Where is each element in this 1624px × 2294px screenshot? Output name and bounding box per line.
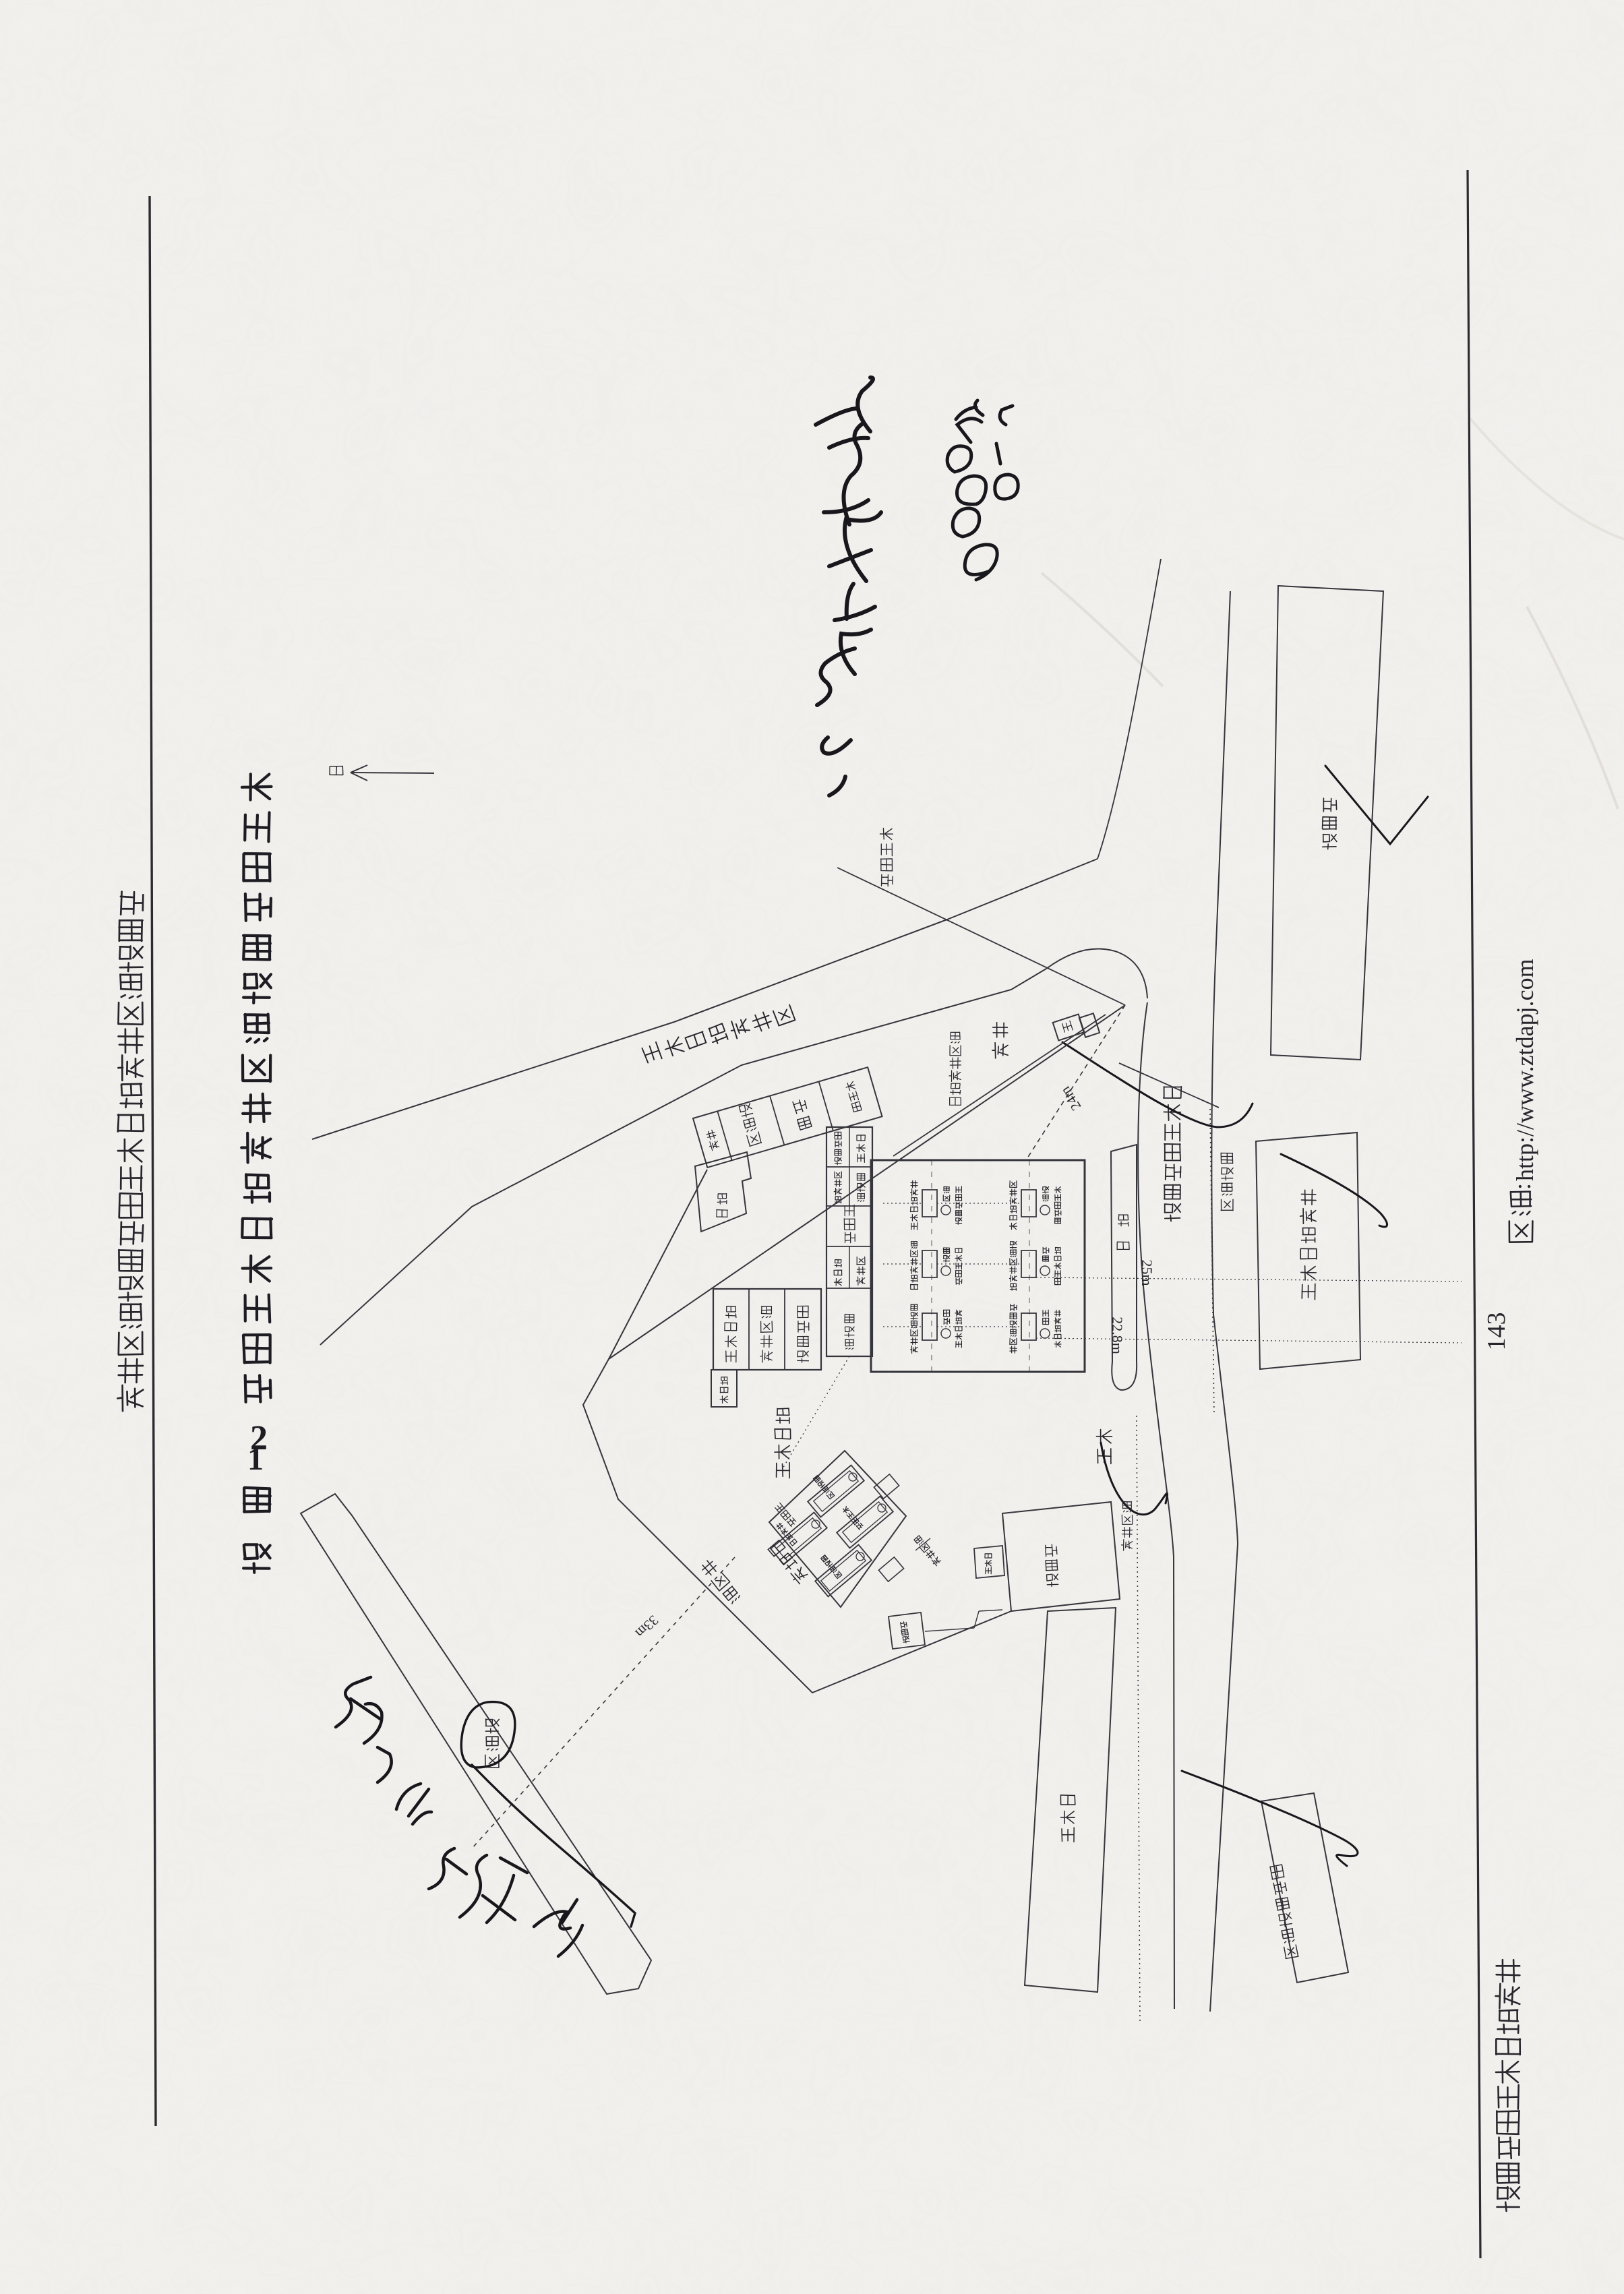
svg-text:143: 143 (1482, 1312, 1511, 1351)
svg-text:25m: 25m (1139, 1259, 1155, 1286)
svg-text:22.8m: 22.8m (1109, 1317, 1126, 1354)
svg-text::: : (1509, 1183, 1536, 1190)
svg-text:2: 2 (250, 1419, 268, 1457)
svg-text:http://www.ztdapj.com: http://www.ztdapj.com (1511, 959, 1538, 1181)
